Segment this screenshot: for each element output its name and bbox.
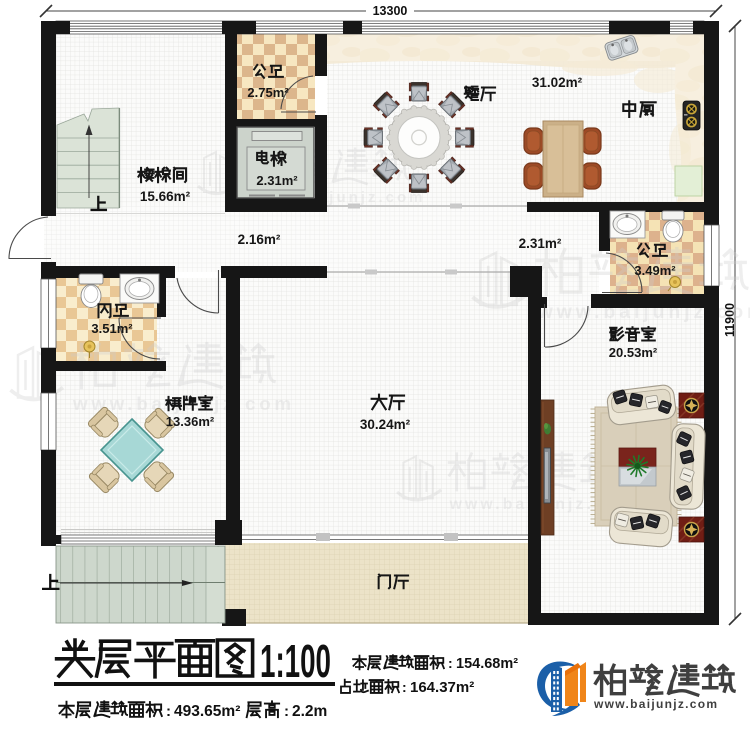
svg-text::: :: [402, 679, 407, 695]
svg-text:2.2m: 2.2m: [292, 703, 327, 720]
svg-text::: :: [284, 703, 289, 720]
svg-text:164.37m²: 164.37m²: [410, 679, 474, 696]
svg-text:2.16m²: 2.16m²: [238, 232, 281, 247]
svg-text:13300: 13300: [373, 4, 408, 18]
svg-text:2.75m²: 2.75m²: [247, 85, 289, 100]
svg-text:2.31m²: 2.31m²: [256, 173, 298, 188]
svg-text:31.02m²: 31.02m²: [532, 75, 583, 90]
svg-text::: :: [166, 703, 171, 720]
svg-text:30.24m²: 30.24m²: [360, 417, 411, 432]
svg-text:493.65m²: 493.65m²: [174, 703, 240, 720]
svg-text:3.51m²: 3.51m²: [91, 321, 133, 336]
svg-text:2.31m²: 2.31m²: [519, 236, 562, 251]
svg-text:15.66m²: 15.66m²: [140, 189, 191, 204]
svg-text:1:100: 1:100: [260, 635, 331, 687]
svg-text::: :: [448, 655, 453, 671]
svg-text:20.53m²: 20.53m²: [609, 345, 658, 360]
svg-text:3.49m²: 3.49m²: [634, 263, 676, 278]
svg-text:13.36m²: 13.36m²: [166, 414, 215, 429]
svg-text:154.68m²: 154.68m²: [456, 656, 518, 672]
svg-text:www.baijunjz.com: www.baijunjz.com: [593, 697, 718, 711]
